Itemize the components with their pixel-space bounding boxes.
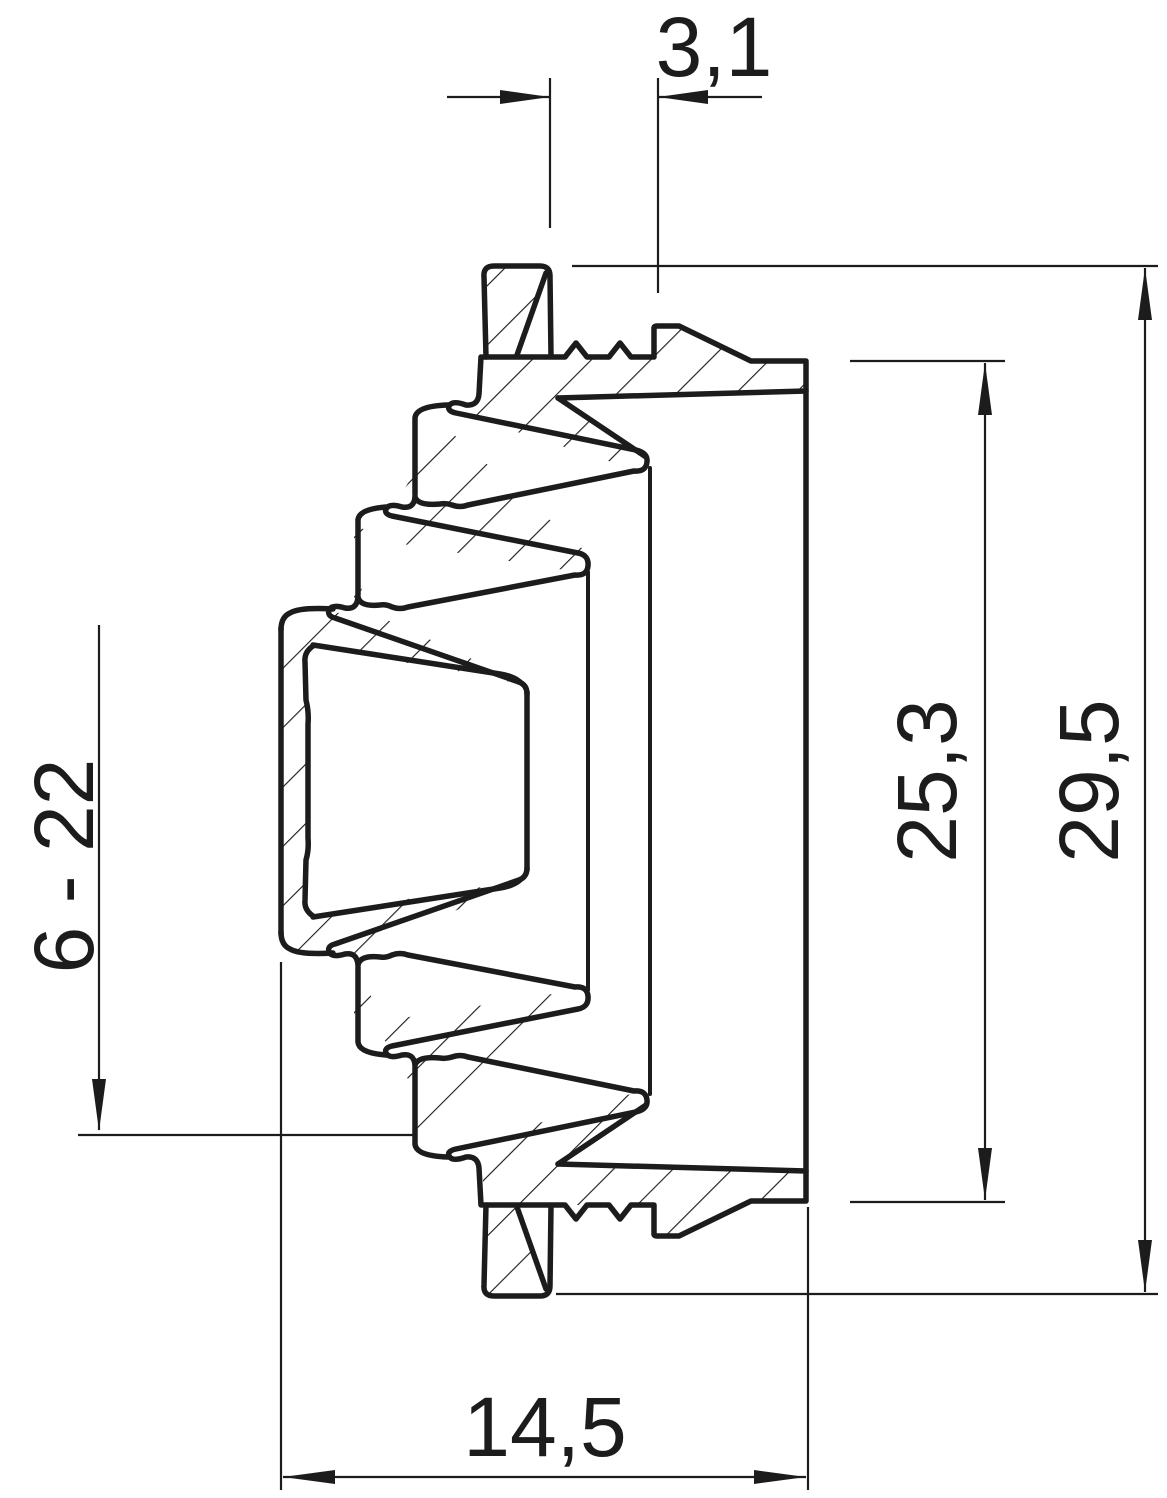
dimension-top-width: [447, 78, 762, 293]
arrowhead-up-icon: [978, 363, 992, 415]
arrowhead-right-icon: [754, 1470, 806, 1484]
hatch-tip-top: [484, 266, 546, 357]
hatch-membrane: [281, 600, 364, 962]
membrane-inner-face: [305, 646, 313, 916]
label-clamping-range: 6 - 22: [17, 759, 111, 974]
dimension-labels: 3,1 25,3 29,5 6 - 22 14,5: [17, 0, 1136, 1474]
section-hatching: [281, 266, 806, 1296]
drawing-page: 3,1 25,3 29,5 6 - 22 14,5: [0, 0, 1167, 1498]
dimensions: [78, 78, 1158, 1490]
label-top-width: 3,1: [656, 0, 773, 94]
arrowhead-down-icon: [92, 1079, 106, 1131]
arrowhead-down-icon: [1138, 1240, 1152, 1292]
arrowhead-right-icon: [500, 90, 550, 104]
arrowhead-up-icon: [1138, 268, 1152, 320]
technical-drawing: 3,1 25,3 29,5 6 - 22 14,5: [0, 0, 1167, 1498]
fin-rims: [588, 468, 650, 1094]
label-bottom-width: 14,5: [463, 1380, 627, 1474]
dimension-clamping-range: [78, 625, 414, 1135]
label-outer-height: 29,5: [1042, 699, 1136, 863]
arrowhead-left-icon: [283, 1470, 335, 1484]
label-inner-height: 25,3: [880, 699, 974, 863]
hatch-tip-bottom: [484, 1205, 546, 1296]
arrowhead-down-icon: [978, 1148, 992, 1200]
